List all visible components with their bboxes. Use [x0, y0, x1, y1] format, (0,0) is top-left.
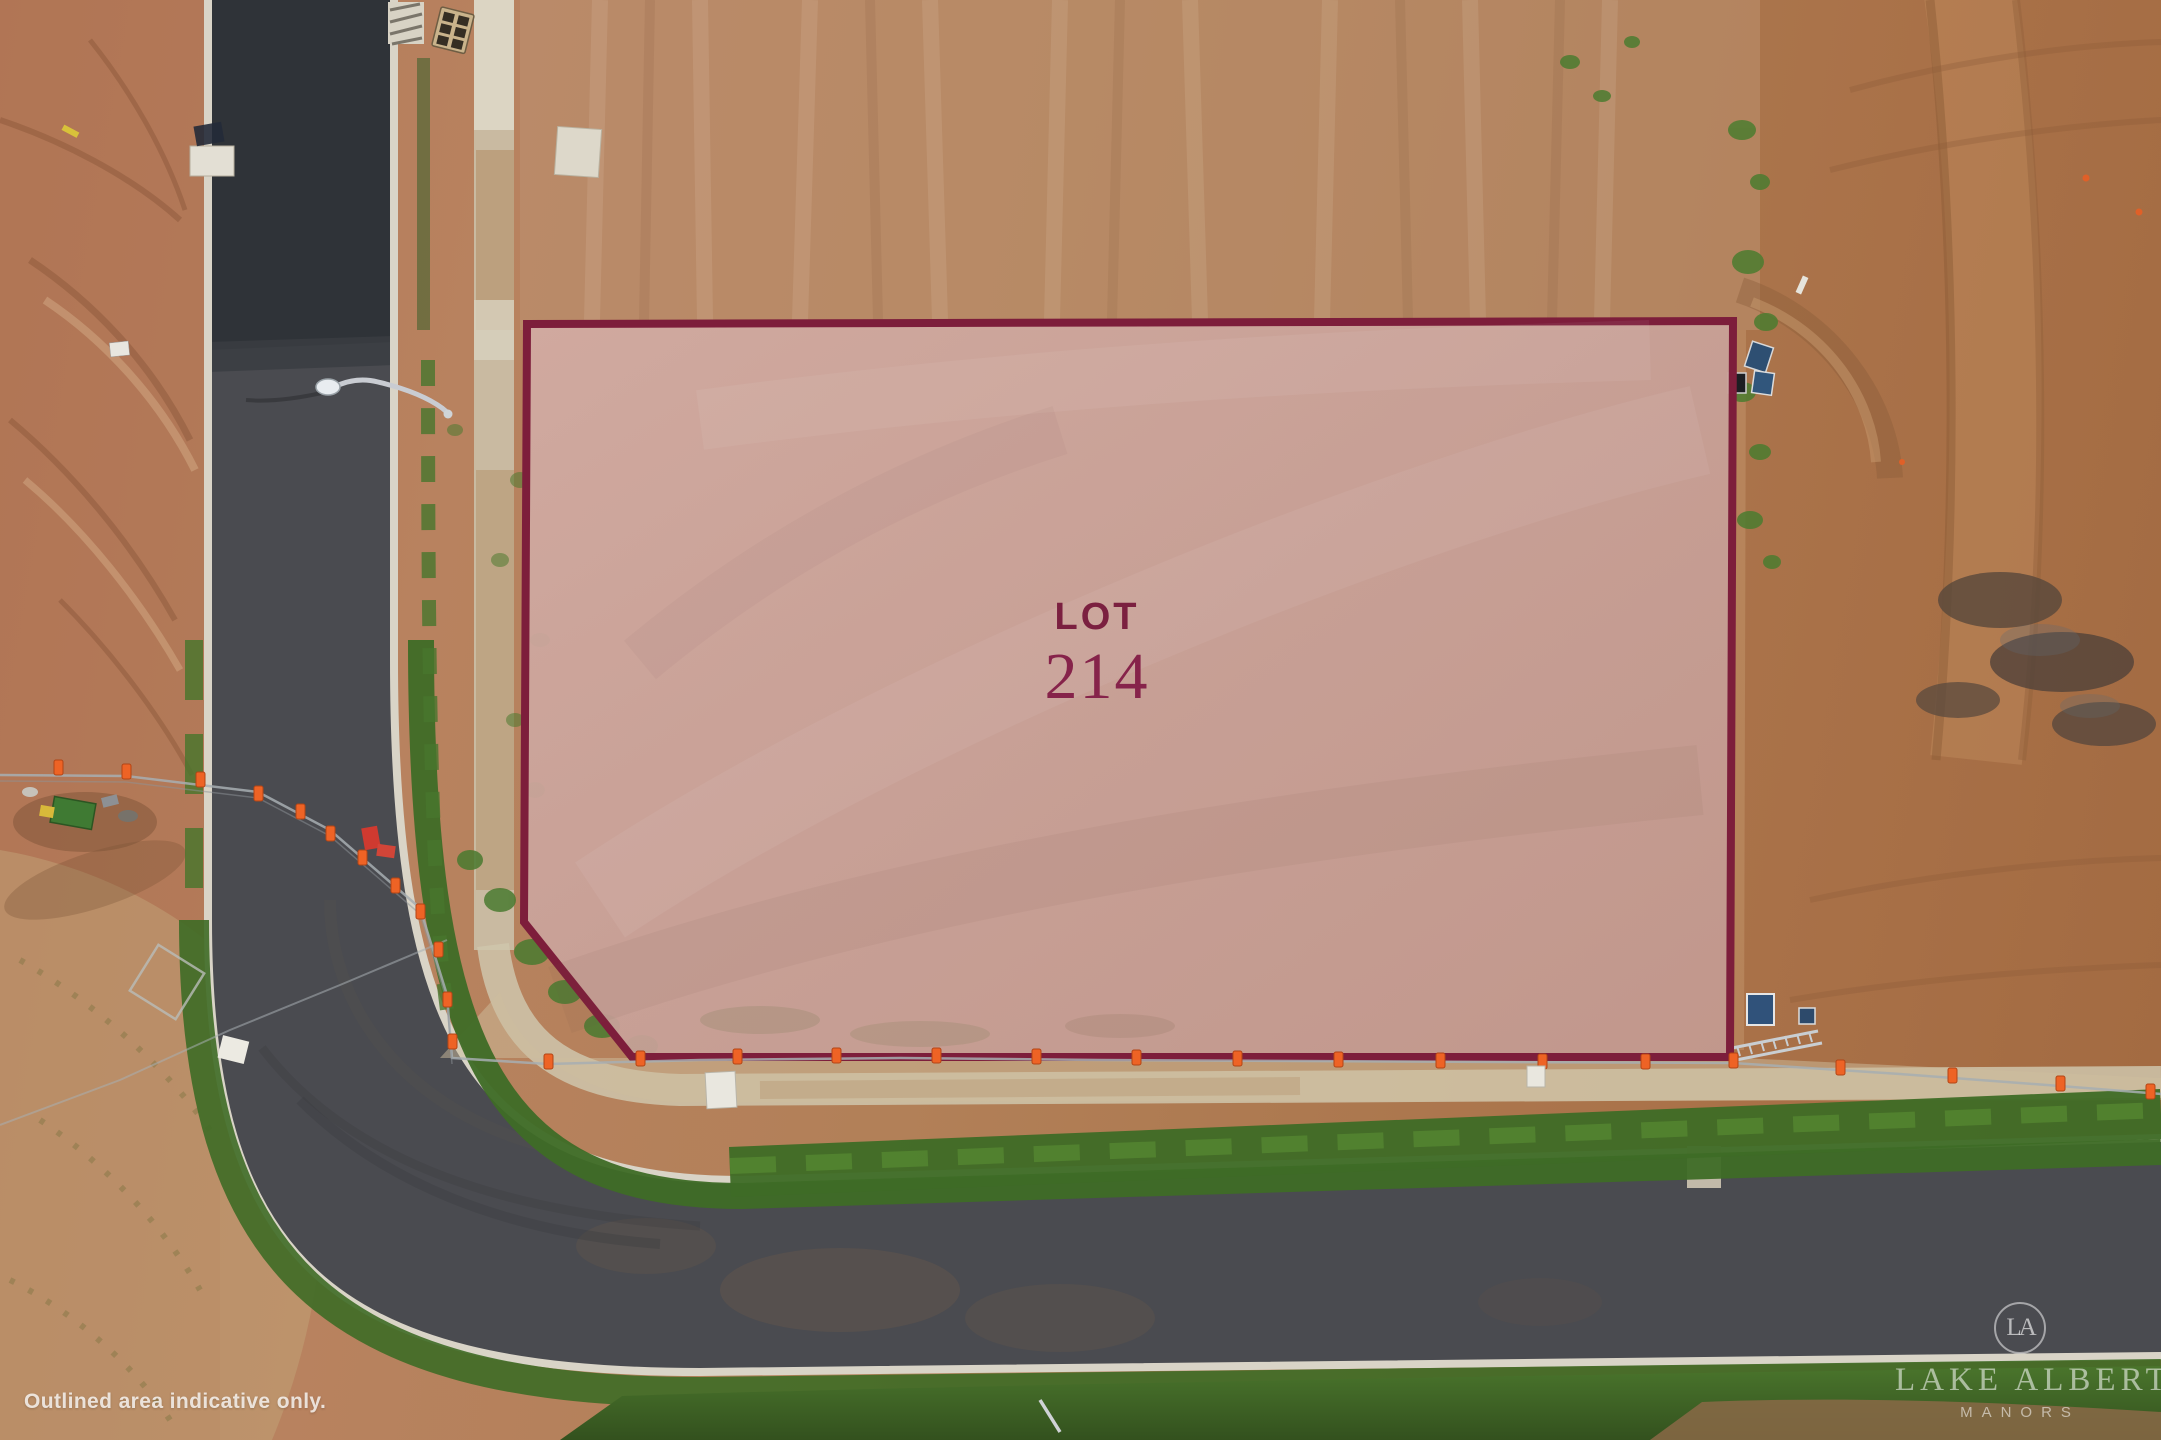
lot-214-overlay [524, 321, 1733, 1057]
fence-sign [705, 1071, 737, 1109]
kerb-ramp [388, 2, 424, 44]
ladder [1732, 1031, 1822, 1060]
kerb-inlet [190, 146, 234, 176]
disclaimer-text: Outlined area indicative only. [24, 1390, 326, 1414]
brand-name: LAKE ALBERT [1895, 1362, 2145, 1399]
brand-subtitle: MANORS [1895, 1404, 2145, 1421]
drain-grate [432, 7, 475, 54]
brand-watermark: LA LAKE ALBERT MANORS [1895, 1302, 2145, 1421]
barrier-board [376, 844, 395, 858]
fence-sign [1527, 1066, 1545, 1087]
brand-monogram-circle: LA [1994, 1302, 2046, 1354]
brand-monogram: LA [2006, 1314, 2033, 1342]
concrete-pad [554, 127, 601, 178]
site-sign [109, 341, 129, 357]
aerial-site-photo: LOT 214 Outlined area indicative only. L… [0, 0, 2161, 1440]
terrain-graphic [0, 0, 2161, 1440]
